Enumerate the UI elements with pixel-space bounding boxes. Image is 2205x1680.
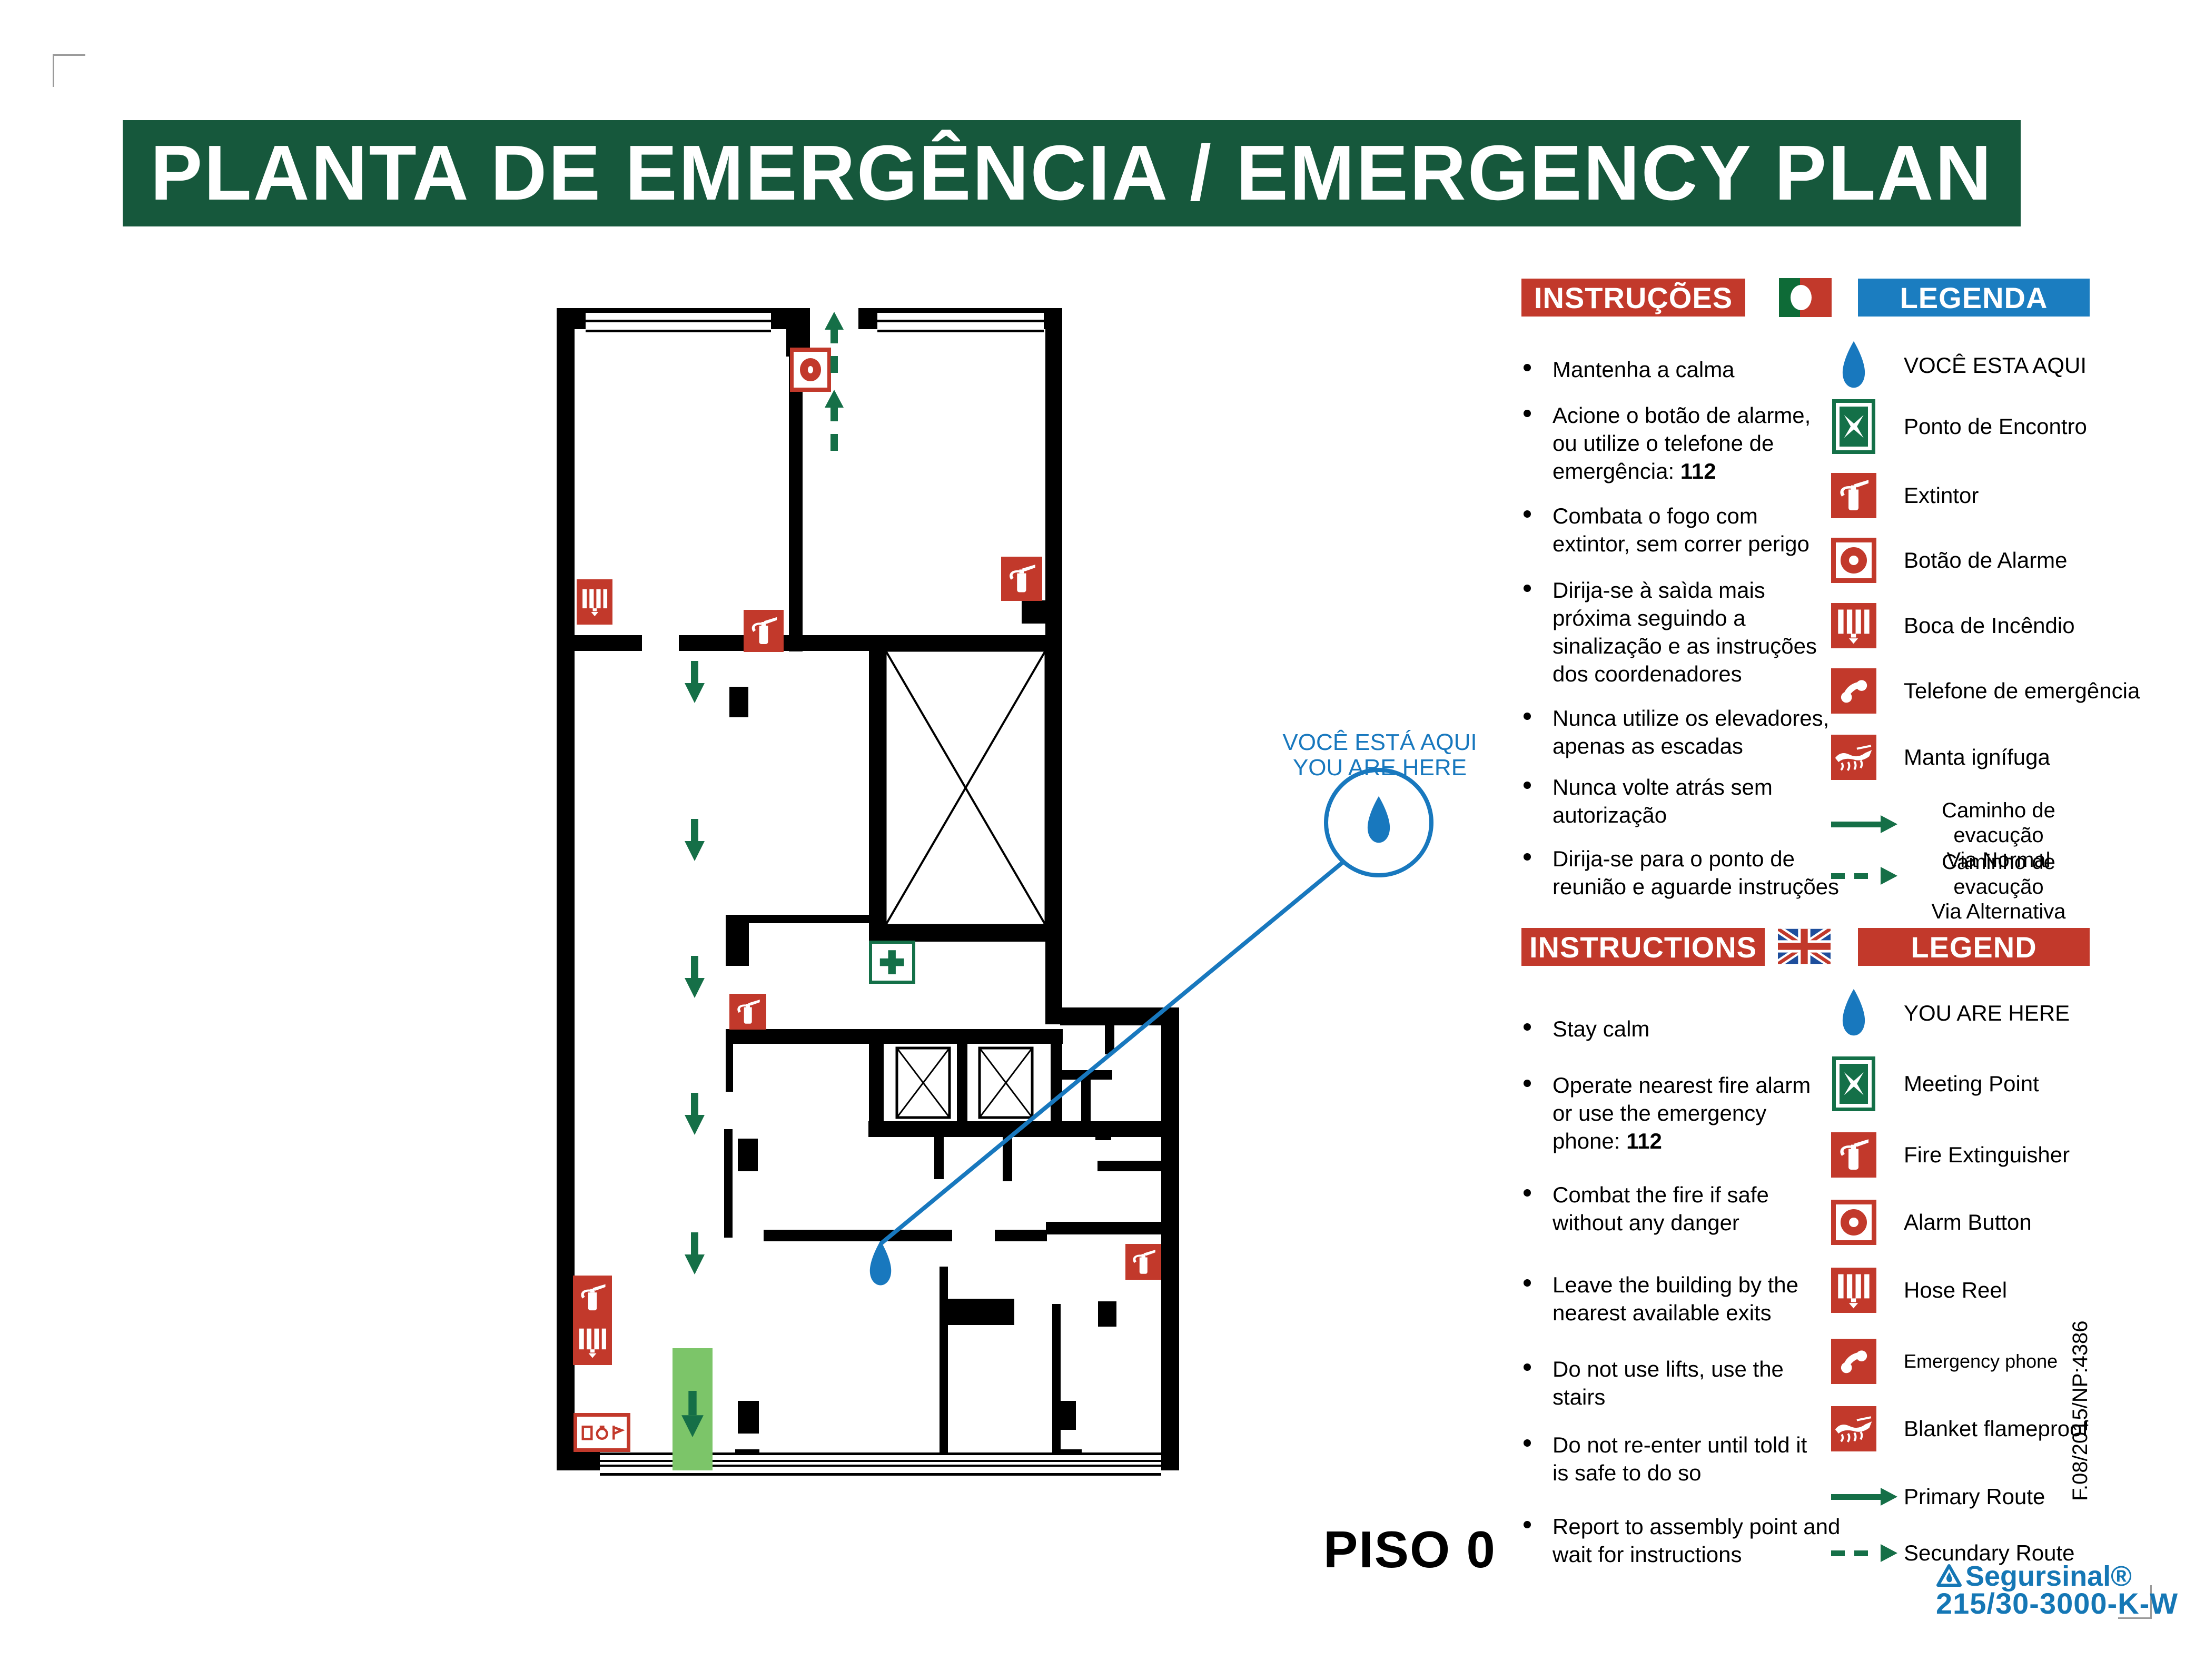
flame-triangle-icon (1936, 1563, 1962, 1589)
wall (738, 1401, 759, 1434)
legend-item: Telefone de emergência (1825, 667, 2120, 715)
bullet-dot (1524, 782, 1531, 789)
wall (1003, 1137, 1012, 1181)
primary-route-arrow-icon (685, 819, 705, 861)
bullet-dot (1524, 1363, 1531, 1371)
reference-code: F.08/2015/NP:4386 (2069, 1301, 2092, 1501)
wall (764, 1230, 952, 1241)
legend-item: VOCÊ ESTA AQUI (1825, 342, 2120, 389)
legend-label: Manta ignífuga (1904, 734, 2050, 781)
title-banner: PLANTA DE EMERGÊNCIA / EMERGENCY PLAN (123, 120, 2021, 226)
instruction-item: Combata o fogo com extintor, sem correr … (1524, 502, 1850, 558)
first-aid-icon (869, 941, 915, 984)
wall (1052, 1304, 1061, 1458)
secondary-route-arrow-icon (825, 390, 844, 421)
bullet-dot (1524, 1023, 1531, 1031)
alarm-button-icon (790, 348, 831, 392)
en-instructions-title: INSTRUCTIONS (1529, 930, 1757, 964)
wall (679, 635, 1062, 651)
instruction-item: Do not use lifts, use the stairs (1524, 1355, 1850, 1411)
wall (1095, 1131, 1111, 1140)
instruction-item: Report to assembly point and wait for in… (1524, 1513, 1850, 1568)
wall (1105, 1025, 1114, 1054)
fire-extinguisher-icon (744, 610, 784, 652)
you-are-here-label-pt: VOCÊ ESTÁ AQUI (1259, 729, 1501, 756)
wall (1098, 1301, 1116, 1327)
legend-item: Ponto de Encontro (1825, 403, 2120, 450)
wall (1046, 1222, 1162, 1234)
fire-extinguisher-icon (573, 1276, 612, 1320)
wall (738, 1139, 758, 1171)
wall (1022, 600, 1062, 624)
legend-label: Primary Route (1904, 1473, 2045, 1520)
bullet-dot (1524, 853, 1531, 861)
legend-item: Extintor (1825, 472, 2120, 519)
legend-label: Alarm Button (1904, 1199, 2032, 1246)
fire-extinguisher-icon (1125, 1244, 1161, 1280)
bullet-dot (1524, 1279, 1531, 1287)
wall (724, 1129, 733, 1238)
pt-instructions-title: INSTRUÇÕES (1534, 281, 1733, 315)
you-are-here-drop-icon (1368, 796, 1390, 843)
instruction-item: Dirija-se para o ponto de reunião e agua… (1524, 845, 1850, 901)
window (877, 310, 1044, 332)
wall (957, 1044, 967, 1121)
fire-blanket-icon (1831, 735, 1876, 780)
legend-label: Caminho de evacuçãoVia Alternativa (1899, 850, 2099, 924)
instruction-item: Mantenha a calma (1524, 355, 1850, 383)
primary-route-arrow-icon (685, 661, 705, 703)
bullet-dot (1524, 1521, 1531, 1528)
legend-label: Emergency phone (1904, 1338, 2058, 1385)
bullet-dot (1524, 364, 1531, 371)
wall (1051, 1044, 1062, 1121)
wall (869, 1044, 884, 1121)
floor-label: PISO 0 (1323, 1520, 1496, 1579)
legend-label: VOCÊ ESTA AQUI (1904, 342, 2087, 389)
legend-item: Caminho de evacuçãoVia Alternativa (1825, 852, 2120, 900)
legend-item: Botão de Alarme (1825, 537, 2120, 584)
wall (1045, 308, 1062, 1024)
secondary-route-arrow-icon (1831, 867, 1903, 885)
legend-item: Meeting Point (1825, 1060, 2120, 1108)
instruction-item: Stay calm (1524, 1015, 1850, 1043)
legend-item: Alarm Button (1825, 1199, 2120, 1246)
model-number: 215/30-3000-K-W (1936, 1586, 2178, 1620)
legend-item: YOU ARE HERE (1825, 990, 2120, 1037)
en-legend-header: LEGEND (1858, 928, 2090, 966)
legend-label: Botão de Alarme (1904, 537, 2068, 584)
portugal-flag-icon (1779, 278, 1832, 317)
you-are-here-drop-icon (1838, 988, 1869, 1039)
pt-legend-header: LEGENDA (1858, 279, 2090, 317)
wall (1062, 1121, 1162, 1137)
wall (995, 1230, 1047, 1241)
instruction-item: Nunca utilize os elevadores, apenas as e… (1524, 704, 1850, 760)
wall (726, 917, 749, 966)
emergency-phone-icon (1831, 1339, 1876, 1384)
secondary-route-arrow-icon (825, 312, 844, 343)
wall (729, 687, 748, 717)
emergency-phone-icon (1831, 668, 1876, 714)
instruction-item: Dirija-se à saìda mais próxima seguindo … (1524, 576, 1850, 688)
bullet-dot (1524, 410, 1531, 417)
bullet-dot (1524, 1189, 1531, 1197)
crop-mark (53, 54, 54, 87)
primary-route-arrow-icon (1831, 1488, 1903, 1506)
en-instructions-header: INSTRUCTIONS (1521, 928, 1765, 966)
wall (1097, 1161, 1162, 1171)
instruction-item: Do not re-enter until told it is safe to… (1524, 1431, 1850, 1487)
hose-reel-icon (1831, 603, 1876, 648)
fire-extinguisher-icon (1831, 473, 1876, 518)
legend-label: Ponto de Encontro (1904, 403, 2087, 450)
legend-item: Boca de Incêndio (1825, 602, 2120, 649)
fire-extinguisher-icon (1001, 557, 1042, 601)
bullet-dot (1524, 510, 1531, 518)
legend-item: Manta ignífuga (1825, 734, 2120, 781)
hose-reel-icon (573, 1320, 612, 1365)
you-are-here-drop-icon (1838, 340, 1869, 391)
emergency-plan-poster: PLANTA DE EMERGÊNCIA / EMERGENCY PLAN (0, 0, 2205, 1680)
page-title: PLANTA DE EMERGÊNCIA / EMERGENCY PLAN (151, 129, 1993, 218)
wall (869, 651, 886, 942)
instruction-item: Leave the building by the nearest availa… (1524, 1271, 1850, 1327)
you-are-here-label-en: YOU ARE HERE (1259, 755, 1501, 781)
wall (940, 1267, 948, 1459)
fire-blanket-icon (1831, 1406, 1876, 1451)
wall (726, 1036, 733, 1092)
meeting-point-icon (1832, 1056, 1875, 1111)
legend-item: Fire Extinguisher (1825, 1131, 2120, 1179)
primary-route-arrow-icon (1831, 815, 1903, 833)
wall (1161, 1452, 1179, 1470)
en-legend-title: LEGEND (1911, 930, 2036, 964)
alarm-button-icon (1831, 1200, 1876, 1245)
crop-mark (53, 54, 85, 56)
wall (1161, 1007, 1179, 1470)
wall (1055, 1401, 1076, 1430)
legend-label: Boca de Incêndio (1904, 602, 2075, 649)
legend-label: Extintor (1904, 472, 1979, 519)
bullet-dot (1524, 585, 1531, 592)
fire-extinguisher-icon (1831, 1132, 1876, 1178)
instruction-item: Combat the fire if safe without any dang… (1524, 1181, 1850, 1237)
wall (1081, 1080, 1091, 1124)
wall (1060, 1070, 1112, 1080)
pt-legend-title: LEGENDA (1900, 281, 2048, 315)
wall (944, 1299, 1014, 1325)
instruction-item: Acione o botão de alarme, ou utilize o t… (1524, 401, 1850, 485)
wall (572, 635, 642, 651)
primary-route-arrow-icon (685, 1093, 705, 1135)
legend-item: Caminho de evacuçãoVia Normal (1825, 801, 2120, 848)
instruction-item: Nunca volte atrás sem autorização (1524, 773, 1850, 829)
bullet-dot (1524, 1080, 1531, 1087)
bullet-dot (1524, 713, 1531, 720)
alarm-panel (794, 352, 827, 388)
legend-label: Hose Reel (1904, 1267, 2007, 1314)
wall (869, 925, 1062, 942)
window (586, 310, 771, 332)
wall (726, 1029, 1063, 1044)
primary-route-arrow-icon (681, 1391, 704, 1437)
legend-label: Blanket flameproof (1904, 1405, 2088, 1452)
fire-alarm-panel-icon (574, 1413, 630, 1452)
wall (934, 1137, 944, 1179)
primary-route-arrow-icon (685, 1232, 705, 1274)
hose-reel-icon (577, 579, 612, 625)
legend-label: YOU ARE HERE (1904, 990, 2070, 1037)
uk-flag-icon (1778, 927, 1831, 966)
meeting-point-icon (1832, 399, 1875, 454)
hose-reel-icon (1831, 1268, 1876, 1313)
secondary-route-dash (830, 434, 838, 451)
legend-label: Meeting Point (1904, 1060, 2039, 1108)
legend-label: Telefone de emergência (1904, 667, 2140, 715)
secondary-route-arrow-icon (1831, 1544, 1903, 1562)
wall (557, 308, 575, 1469)
instruction-item: Operate nearest fire alarm or use the em… (1524, 1071, 1850, 1155)
legend-label: Fire Extinguisher (1904, 1131, 2070, 1179)
pt-instructions-header: INSTRUÇÕES (1521, 279, 1745, 317)
secondary-route-dash (830, 356, 838, 373)
wall (868, 1121, 1062, 1137)
alarm-button-icon (1831, 538, 1876, 583)
primary-route-arrow-icon (685, 956, 705, 998)
bullet-dot (1524, 1439, 1531, 1447)
you-are-here-drop-icon (870, 1241, 891, 1286)
fire-extinguisher-icon (729, 994, 766, 1030)
